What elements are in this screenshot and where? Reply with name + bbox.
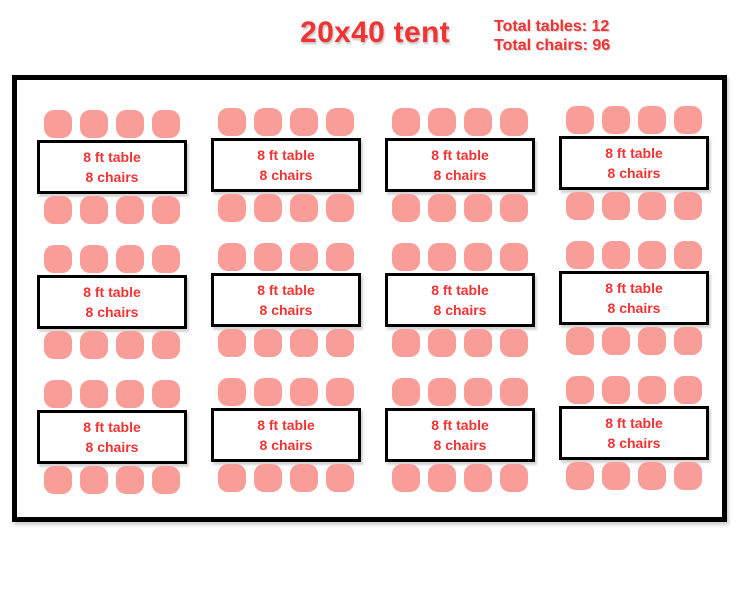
chair-row-bottom — [385, 329, 535, 357]
table-label-line2: 8 chairs — [260, 165, 313, 185]
chair — [500, 243, 528, 271]
chair — [464, 243, 492, 271]
chair — [566, 241, 594, 269]
chair — [152, 196, 180, 224]
tent-outline: 8 ft table 8 chairs 8 ft table 8 chairs … — [12, 75, 727, 522]
chair — [392, 243, 420, 271]
chair — [116, 196, 144, 224]
table-label-line2: 8 chairs — [608, 298, 661, 318]
chair-row-top — [559, 241, 709, 269]
table-label-line2: 8 chairs — [434, 435, 487, 455]
table-unit: 8 ft table 8 chairs — [37, 380, 187, 494]
chair — [674, 376, 702, 404]
chair — [566, 462, 594, 490]
chair — [218, 329, 246, 357]
chair — [218, 194, 246, 222]
stats-block: Total tables: 12 Total chairs: 96 — [494, 17, 610, 55]
chair-row-bottom — [559, 462, 709, 490]
chair — [638, 462, 666, 490]
chair — [218, 243, 246, 271]
chair-row-top — [385, 108, 535, 136]
chair-row-top — [37, 380, 187, 408]
chair — [152, 466, 180, 494]
page-title: 20x40 tent — [300, 16, 450, 50]
chair-row-bottom — [37, 331, 187, 359]
total-tables-label: Total tables: 12 — [494, 17, 610, 36]
chair — [44, 196, 72, 224]
chair — [80, 331, 108, 359]
chair — [674, 241, 702, 269]
table-label-line1: 8 ft table — [83, 417, 141, 437]
table-unit: 8 ft table 8 chairs — [211, 243, 361, 357]
table-unit: 8 ft table 8 chairs — [385, 378, 535, 492]
chair — [290, 194, 318, 222]
chair — [218, 378, 246, 406]
chair — [254, 464, 282, 492]
chair — [602, 106, 630, 134]
chair — [152, 331, 180, 359]
chair — [428, 194, 456, 222]
chair — [254, 378, 282, 406]
chair — [674, 462, 702, 490]
chair — [152, 110, 180, 138]
chair — [602, 192, 630, 220]
chair — [674, 106, 702, 134]
chair — [152, 380, 180, 408]
table-unit: 8 ft table 8 chairs — [559, 241, 709, 355]
chair — [428, 464, 456, 492]
chair-row-bottom — [211, 194, 361, 222]
chair — [80, 245, 108, 273]
chair-row-bottom — [385, 194, 535, 222]
chair — [464, 378, 492, 406]
chair — [464, 329, 492, 357]
table-8ft: 8 ft table 8 chairs — [559, 136, 709, 190]
chair — [152, 245, 180, 273]
chair — [326, 194, 354, 222]
table-8ft: 8 ft table 8 chairs — [211, 138, 361, 192]
chair — [80, 196, 108, 224]
chair — [566, 376, 594, 404]
table-label-line2: 8 chairs — [86, 167, 139, 187]
chair — [326, 378, 354, 406]
chair — [638, 106, 666, 134]
chair — [218, 108, 246, 136]
table-8ft: 8 ft table 8 chairs — [211, 273, 361, 327]
table-unit: 8 ft table 8 chairs — [385, 243, 535, 357]
chair — [290, 378, 318, 406]
chair — [638, 327, 666, 355]
table-label-line1: 8 ft table — [257, 280, 315, 300]
chair — [326, 464, 354, 492]
chair — [326, 243, 354, 271]
chair — [638, 376, 666, 404]
table-label-line2: 8 chairs — [608, 163, 661, 183]
chair — [116, 331, 144, 359]
table-label-line2: 8 chairs — [434, 165, 487, 185]
chair — [602, 376, 630, 404]
table-label-line1: 8 ft table — [431, 415, 489, 435]
chair — [254, 329, 282, 357]
chair — [116, 110, 144, 138]
chair-row-top — [211, 108, 361, 136]
table-label-line1: 8 ft table — [605, 413, 663, 433]
chair-row-top — [211, 378, 361, 406]
chair — [290, 464, 318, 492]
chair — [116, 466, 144, 494]
chair — [566, 106, 594, 134]
table-label-line1: 8 ft table — [83, 147, 141, 167]
chair — [392, 378, 420, 406]
table-label-line2: 8 chairs — [608, 433, 661, 453]
chair — [218, 464, 246, 492]
table-unit: 8 ft table 8 chairs — [37, 110, 187, 224]
chair — [44, 245, 72, 273]
table-8ft: 8 ft table 8 chairs — [385, 138, 535, 192]
chair-row-top — [211, 243, 361, 271]
chair-row-bottom — [211, 464, 361, 492]
chair — [80, 466, 108, 494]
chair — [428, 378, 456, 406]
chair — [464, 194, 492, 222]
chair — [500, 108, 528, 136]
chair-row-bottom — [211, 329, 361, 357]
chair — [80, 110, 108, 138]
table-8ft: 8 ft table 8 chairs — [37, 410, 187, 464]
table-unit: 8 ft table 8 chairs — [385, 108, 535, 222]
chair — [602, 462, 630, 490]
chair — [500, 329, 528, 357]
table-label-line1: 8 ft table — [257, 145, 315, 165]
chair — [326, 108, 354, 136]
table-8ft: 8 ft table 8 chairs — [385, 273, 535, 327]
chair-row-bottom — [559, 327, 709, 355]
table-unit: 8 ft table 8 chairs — [211, 108, 361, 222]
chair — [116, 380, 144, 408]
table-label-line1: 8 ft table — [605, 143, 663, 163]
table-8ft: 8 ft table 8 chairs — [37, 275, 187, 329]
chair — [500, 378, 528, 406]
chair — [44, 331, 72, 359]
chair — [326, 329, 354, 357]
chair — [290, 329, 318, 357]
chair — [80, 380, 108, 408]
table-label-line2: 8 chairs — [86, 302, 139, 322]
table-unit: 8 ft table 8 chairs — [37, 245, 187, 359]
table-8ft: 8 ft table 8 chairs — [559, 271, 709, 325]
chair — [254, 194, 282, 222]
chair-row-bottom — [559, 192, 709, 220]
chair — [392, 108, 420, 136]
chair — [428, 108, 456, 136]
chair — [116, 245, 144, 273]
table-label-line2: 8 chairs — [260, 435, 313, 455]
chair — [500, 194, 528, 222]
chair-row-top — [385, 378, 535, 406]
chair — [44, 110, 72, 138]
chair — [674, 327, 702, 355]
table-unit: 8 ft table 8 chairs — [211, 378, 361, 492]
table-label-line1: 8 ft table — [83, 282, 141, 302]
chair — [254, 108, 282, 136]
chair — [638, 192, 666, 220]
table-unit: 8 ft table 8 chairs — [559, 376, 709, 490]
chair — [392, 329, 420, 357]
chair-row-bottom — [37, 466, 187, 494]
chair — [428, 243, 456, 271]
chair-row-bottom — [385, 464, 535, 492]
chair-row-bottom — [37, 196, 187, 224]
chair — [392, 464, 420, 492]
chair — [602, 241, 630, 269]
chair — [254, 243, 282, 271]
chair-row-top — [37, 245, 187, 273]
chair — [464, 108, 492, 136]
chair — [44, 466, 72, 494]
table-label-line1: 8 ft table — [431, 145, 489, 165]
chair — [392, 194, 420, 222]
table-8ft: 8 ft table 8 chairs — [559, 406, 709, 460]
table-8ft: 8 ft table 8 chairs — [385, 408, 535, 462]
table-grid: 8 ft table 8 chairs 8 ft table 8 chairs … — [17, 80, 722, 492]
chair — [290, 243, 318, 271]
chair — [674, 192, 702, 220]
chair — [566, 327, 594, 355]
table-label-line2: 8 chairs — [260, 300, 313, 320]
table-label-line1: 8 ft table — [605, 278, 663, 298]
table-label-line1: 8 ft table — [257, 415, 315, 435]
chair — [44, 380, 72, 408]
chair — [602, 327, 630, 355]
total-chairs-label: Total chairs: 96 — [494, 36, 610, 55]
chair — [566, 192, 594, 220]
chair — [464, 464, 492, 492]
chair-row-top — [385, 243, 535, 271]
table-8ft: 8 ft table 8 chairs — [211, 408, 361, 462]
table-8ft: 8 ft table 8 chairs — [37, 140, 187, 194]
table-unit: 8 ft table 8 chairs — [559, 106, 709, 220]
chair — [290, 108, 318, 136]
chair-row-top — [559, 376, 709, 404]
chair — [500, 464, 528, 492]
chair — [638, 241, 666, 269]
table-label-line2: 8 chairs — [86, 437, 139, 457]
table-label-line1: 8 ft table — [431, 280, 489, 300]
chair — [428, 329, 456, 357]
chair-row-top — [37, 110, 187, 138]
chair-row-top — [559, 106, 709, 134]
table-label-line2: 8 chairs — [434, 300, 487, 320]
